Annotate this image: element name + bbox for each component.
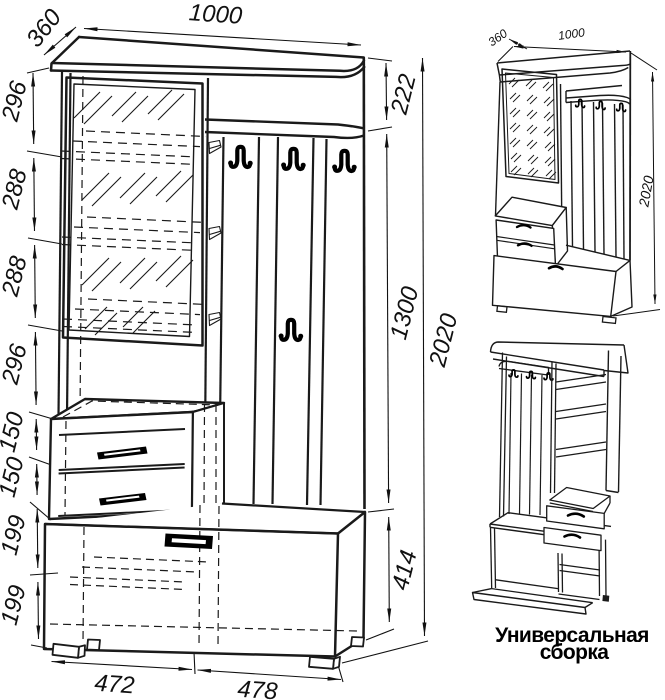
svg-text:472: 472: [94, 670, 136, 700]
svg-text:1000: 1000: [188, 0, 244, 30]
svg-text:478: 478: [237, 676, 279, 700]
svg-text:сборка: сборка: [540, 641, 610, 664]
